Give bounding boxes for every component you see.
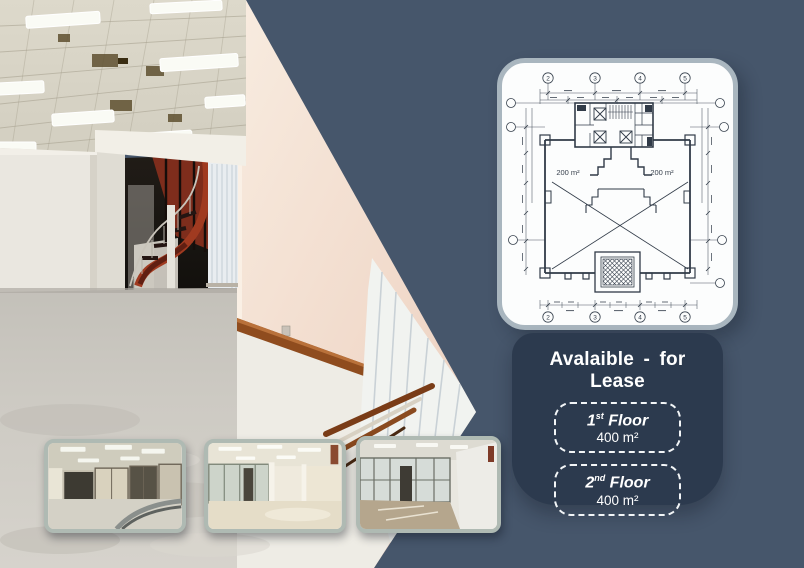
area-label-right: 200 m² (650, 168, 674, 177)
brown-floor (360, 500, 460, 529)
wall-outlet (282, 326, 290, 336)
floor-badge-1-area: 400 m² (556, 430, 679, 446)
lease-title: Avalaible - for Lease (518, 349, 717, 393)
grid-label: 5 (683, 75, 687, 82)
grid-label: 3 (593, 314, 597, 321)
grid-label: 4 (638, 314, 642, 321)
floor-badge-1: 1st Floor 400 m² (554, 402, 681, 453)
lease-info-panel: Avalaible - for Lease 1st Floor 400 m² 2… (512, 333, 723, 505)
grid-label: 3 (593, 75, 597, 82)
thumbnail-photo-1 (44, 439, 186, 533)
floor-badge-2: 2nd Floor 400 m² (554, 464, 681, 515)
plan-open-area-cross (552, 182, 688, 269)
thumbnail-2-scene (208, 443, 342, 529)
grid-label: 5 (683, 314, 687, 321)
thumbnail-photo-3 (356, 436, 501, 533)
plan-grid-top: 2 3 4 5 (540, 73, 697, 104)
blinds-window (206, 162, 238, 288)
thumbnail-photo-2 (204, 439, 346, 533)
floor-plan-drawing: 2 3 4 5 (502, 63, 733, 325)
plan-service-core (575, 103, 653, 147)
floor-plan-card: 2 3 4 5 (497, 58, 738, 330)
thumbnail-1-scene (48, 443, 182, 529)
ceiling (0, 0, 246, 166)
stair-column (167, 205, 175, 292)
glass-partitions (62, 464, 181, 505)
glass-offices (360, 458, 450, 502)
left-wall (0, 145, 125, 295)
plan-shaft (595, 252, 640, 292)
stair-hatch (608, 105, 633, 119)
plan-grid-bottom: 2 3 4 5 (540, 300, 697, 322)
glass-partitions (209, 464, 269, 503)
area-label-left: 200 m² (556, 168, 580, 177)
thumbnail-3-scene (360, 440, 497, 529)
grid-label: 4 (638, 75, 642, 82)
flyer-canvas: 2 3 4 5 (0, 0, 804, 568)
floor-badge-2-area: 400 m² (556, 493, 679, 509)
plan-corridor (586, 147, 656, 213)
floor-badge-1-label: 1st Floor (556, 407, 679, 430)
floor-badge-2-label: 2nd Floor (556, 469, 679, 492)
grid-label: 2 (546, 314, 550, 321)
grid-label: 2 (546, 75, 550, 82)
